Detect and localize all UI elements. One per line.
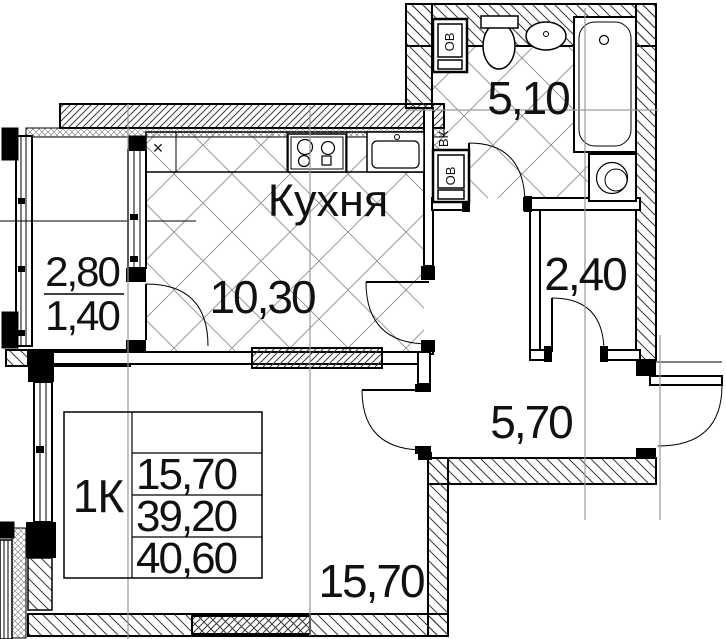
closet-area-label: 2,40: [544, 248, 626, 300]
floor-plan: ОВ ВК ОВ 1К: [0, 0, 726, 639]
hall-area-label: 5,70: [490, 396, 572, 448]
stove: [288, 134, 346, 172]
balcony-area-full-label: 2,80: [45, 248, 119, 295]
riser-ov-bottom-label: ОВ: [443, 167, 458, 186]
counter-cross-mark: ×: [153, 138, 164, 158]
riser-ov-top-label: ОВ: [442, 33, 457, 52]
balcony-partition: [128, 136, 146, 268]
flat-type-label: 1К: [73, 470, 125, 522]
washing-machine: [589, 154, 636, 201]
room-window: [34, 382, 52, 522]
bathtub: [574, 17, 636, 152]
floor-plan-svg: ОВ ВК ОВ 1К: [0, 0, 726, 639]
bathroom-sink: [526, 22, 566, 50]
bathroom-area-label: 5,10: [487, 72, 569, 124]
balcony-area-reduced-label: 1,40: [45, 292, 119, 339]
room-area-label: 15,70: [318, 555, 424, 607]
kitchen-area-label: 10,30: [209, 271, 315, 323]
riser-vk-label: ВК: [436, 130, 451, 147]
kitchen-label: Кухня: [268, 175, 388, 226]
total-area-value: 40,60: [136, 534, 237, 583]
kitchen-sink: [367, 132, 424, 172]
